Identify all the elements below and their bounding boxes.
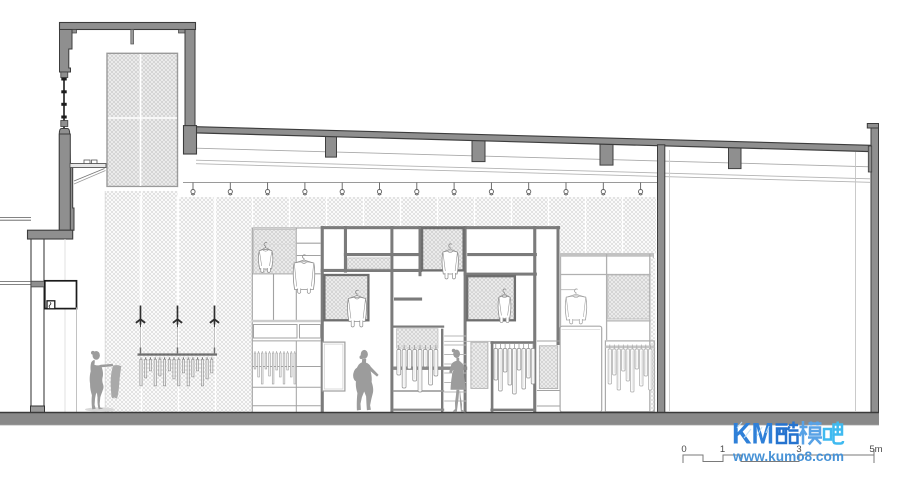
svg-text:www.kumo8.com: www.kumo8.com — [732, 449, 844, 464]
svg-text:1: 1 — [720, 444, 725, 455]
svg-text:KM: KM — [732, 418, 774, 451]
svg-text:5m: 5m — [869, 444, 882, 455]
svg-text:0: 0 — [681, 444, 686, 455]
